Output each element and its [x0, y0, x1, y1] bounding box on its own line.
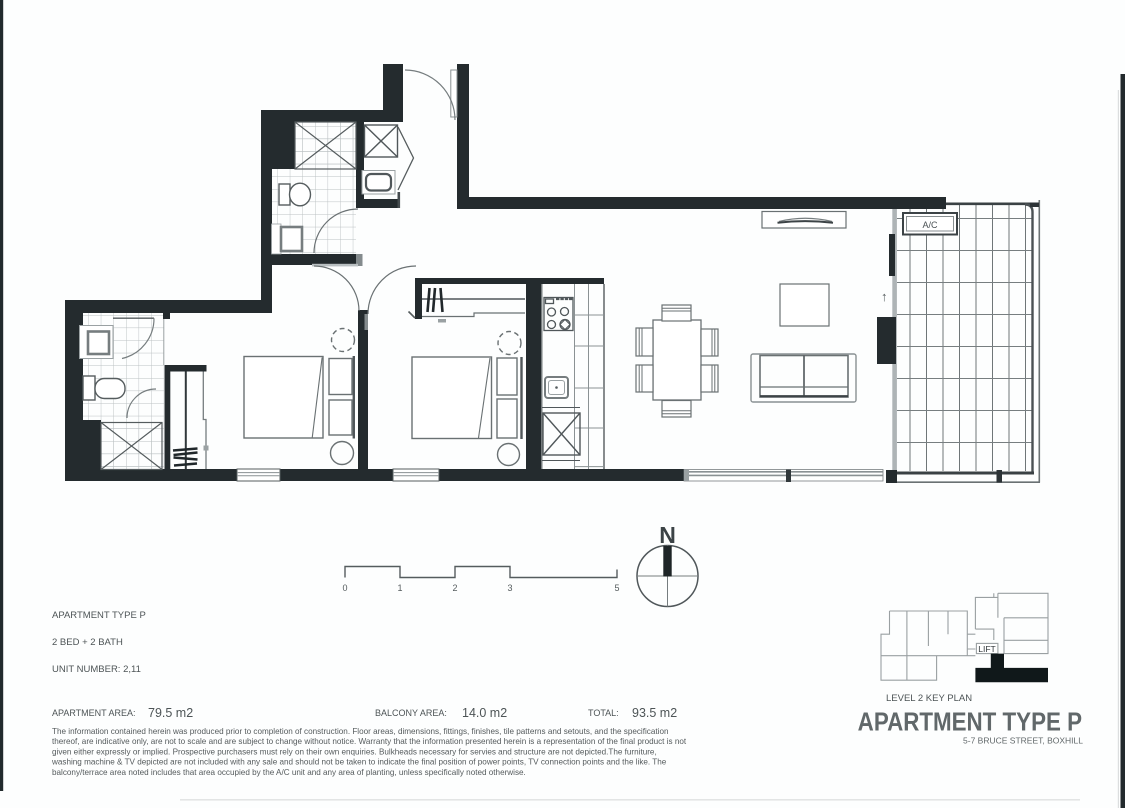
svg-text:N: N — [659, 522, 676, 548]
svg-text:5: 5 — [614, 583, 619, 593]
svg-text:LEVEL 2 KEY PLAN: LEVEL 2 KEY PLAN — [886, 693, 972, 704]
svg-text:APARTMENT AREA:: APARTMENT AREA: — [52, 708, 136, 718]
svg-text:thereof, are indicative only,: thereof, are indicative only, are not to… — [52, 737, 687, 746]
svg-text:79.5 m2: 79.5 m2 — [148, 706, 193, 720]
svg-text:APARTMENT TYPE P: APARTMENT TYPE P — [858, 708, 1082, 737]
svg-text:14.0 m2: 14.0 m2 — [462, 706, 507, 720]
svg-text:LIFT: LIFT — [978, 644, 995, 654]
svg-text:2 BED + 2 BATH: 2 BED + 2 BATH — [52, 637, 123, 648]
svg-text:5-7 BRUCE STREET, BOXHILL: 5-7 BRUCE STREET, BOXHILL — [963, 736, 1083, 746]
svg-text:balcony/terrace area noted inc: balcony/terrace area noted includes that… — [52, 768, 526, 777]
svg-text:0: 0 — [342, 583, 347, 593]
svg-text:BALCONY AREA:: BALCONY AREA: — [375, 708, 447, 718]
svg-text:↑: ↑ — [881, 289, 888, 304]
svg-text:1: 1 — [397, 583, 402, 593]
svg-text:TOTAL:: TOTAL: — [588, 708, 619, 718]
svg-text:3: 3 — [507, 583, 512, 593]
svg-text:93.5 m2: 93.5 m2 — [632, 706, 677, 720]
svg-text:2: 2 — [452, 583, 457, 593]
svg-text:A/C: A/C — [922, 220, 938, 230]
svg-text:The information contained here: The information contained herein was pro… — [52, 727, 668, 736]
svg-text:given either expressly or impl: given either expressly or implied. Prosp… — [52, 747, 657, 756]
svg-text:UNIT NUMBER: 2,11: UNIT NUMBER: 2,11 — [52, 664, 141, 675]
svg-text:washing machine & TV depicted: washing machine & TV depicted are not in… — [51, 758, 667, 767]
svg-text:APARTMENT TYPE P: APARTMENT TYPE P — [52, 610, 146, 621]
